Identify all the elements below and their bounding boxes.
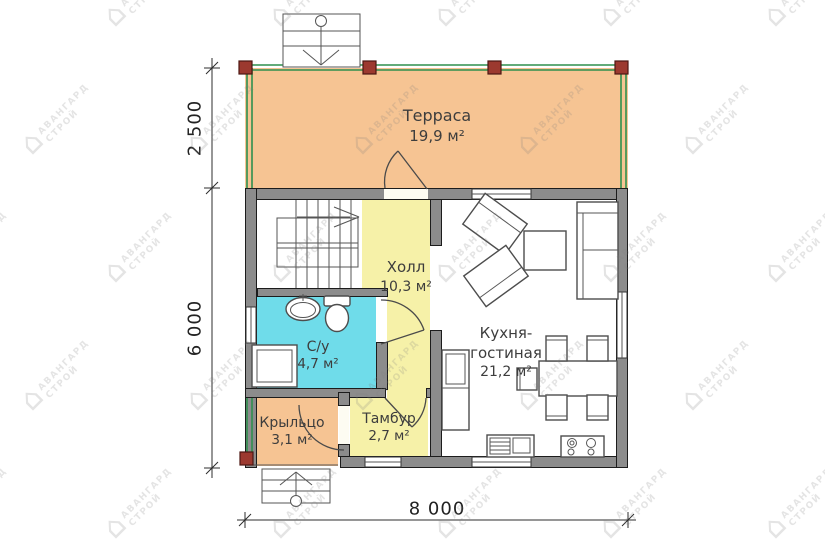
hall-name: Холл bbox=[380, 258, 432, 278]
watermark-logo: ⌂АВАНГАРДСТРОЙ bbox=[263, 460, 348, 545]
watermark-logo: ⌂АВАНГАРДСТРОЙ bbox=[675, 76, 760, 161]
watermark-logo: ⌂АВАНГАРДСТРОЙ bbox=[428, 0, 513, 32]
watermark-brand-text: АВАНГАРДСТРОЙ bbox=[37, 338, 99, 400]
watermark-brand-text: АВАНГАРДСТРОЙ bbox=[285, 0, 347, 17]
dining-chair bbox=[546, 336, 567, 361]
bathroom-area: 4,7 м² bbox=[297, 356, 338, 374]
entry-stairs-bottom bbox=[262, 469, 330, 507]
kitchen-area: 21,2 м² bbox=[470, 363, 542, 381]
watermark-logo: ⌂АВАНГАРДСТРОЙ bbox=[0, 0, 17, 32]
watermark-brand-text: АВАНГАРДСТРОЙ bbox=[780, 0, 825, 17]
kitchen-sink-unit bbox=[487, 435, 534, 457]
bathroom-name: С/у bbox=[297, 338, 338, 356]
watermark-brand-text: АВАНГАРДСТРОЙ bbox=[697, 338, 759, 400]
kitchen-name-line2: гостиная bbox=[470, 344, 542, 364]
watermark-logo: ⌂АВАНГАРДСТРОЙ bbox=[758, 204, 825, 289]
watermark-brand-text: АВАНГАРДСТРОЙ bbox=[120, 466, 182, 528]
porch-area: 3,1 м² bbox=[259, 432, 324, 450]
watermark-brand-text: АВАНГАРДСТРОЙ bbox=[780, 210, 825, 272]
hall-area: 10,3 м² bbox=[380, 278, 432, 296]
watermark-house-icon: ⌂ bbox=[98, 510, 133, 545]
watermark-logo: ⌂АВАНГАРДСТРОЙ bbox=[15, 76, 100, 161]
watermark-logo: ⌂АВАНГАРДСТРОЙ bbox=[263, 0, 348, 32]
watermark-house-icon: ⌂ bbox=[675, 382, 710, 417]
entry-stairs-top bbox=[283, 14, 360, 67]
watermark-house-icon: ⌂ bbox=[758, 0, 793, 32]
watermark-house-icon: ⌂ bbox=[98, 0, 133, 32]
wall-porch-vestibule-lower bbox=[338, 444, 350, 457]
wall-porch-top bbox=[245, 388, 386, 398]
armchair-1 bbox=[463, 193, 527, 254]
entrance-door-opening bbox=[339, 406, 349, 444]
kitchen-name-line1: Кухня- bbox=[470, 324, 542, 344]
wall-left bbox=[245, 188, 257, 468]
vestibule-area: 2,7 м² bbox=[362, 428, 416, 446]
watermark-house-icon: ⌂ bbox=[428, 254, 463, 289]
watermark-house-icon: ⌂ bbox=[428, 0, 463, 32]
watermark-logo: ⌂АВАНГАРДСТРОЙ bbox=[593, 204, 678, 289]
watermark-house-icon: ⌂ bbox=[15, 382, 50, 417]
hall-label: Холл 10,3 м² bbox=[380, 258, 432, 296]
watermark-house-icon: ⌂ bbox=[758, 510, 793, 545]
kitchen-label: Кухня- гостиная 21,2 м² bbox=[470, 324, 542, 381]
watermark-brand-text: АВАНГАРДСТРОЙ bbox=[285, 466, 347, 528]
watermark-house-icon: ⌂ bbox=[593, 510, 628, 545]
dimension-terrace-depth: 2 500 bbox=[185, 100, 206, 157]
armchair-2 bbox=[464, 245, 528, 306]
watermark-brand-text: АВАНГАРДСТРОЙ bbox=[450, 0, 512, 17]
room-stair-area bbox=[257, 199, 362, 289]
coffee-table bbox=[524, 231, 566, 270]
stove bbox=[561, 436, 604, 457]
watermark-brand-text: АВАНГАРДСТРОЙ bbox=[615, 0, 677, 17]
watermark-house-icon: ⌂ bbox=[15, 126, 50, 161]
watermark-brand-text: АВАНГАРДСТРОЙ bbox=[615, 466, 677, 528]
terrace-area: 19,9 м² bbox=[403, 127, 471, 147]
porch-name: Крыльцо bbox=[259, 414, 324, 432]
watermark-house-icon: ⌂ bbox=[180, 382, 215, 417]
kitchen-counter bbox=[442, 350, 469, 430]
watermark-logo: ⌂АВАНГАРДСТРОЙ bbox=[15, 332, 100, 417]
watermark-brand-text: АВАНГАРДСТРОЙ bbox=[0, 210, 17, 272]
watermark-logo: ⌂АВАНГАРДСТРОЙ bbox=[98, 0, 183, 32]
watermark-house-icon: ⌂ bbox=[593, 0, 628, 32]
wall-bottom bbox=[340, 456, 628, 468]
dimension-total-width: 8 000 bbox=[409, 499, 466, 520]
dining-table bbox=[539, 361, 617, 396]
watermark-house-icon: ⌂ bbox=[510, 382, 545, 417]
watermark-house-icon: ⌂ bbox=[263, 0, 298, 32]
watermark-logo: ⌂АВАНГАРДСТРОЙ bbox=[98, 460, 183, 545]
wall-porch-vestibule-upper bbox=[338, 392, 350, 406]
watermark-house-icon: ⌂ bbox=[675, 126, 710, 161]
floor-plan-canvas: Терраса 19,9 м² Холл 10,3 м² С/у 4,7 м² … bbox=[0, 0, 825, 550]
watermark-house-icon: ⌂ bbox=[758, 254, 793, 289]
wall-bathroom-top bbox=[257, 288, 388, 297]
watermark-brand-text: АВАНГАРДСТРОЙ bbox=[697, 82, 759, 144]
watermark-house-icon: ⌂ bbox=[98, 254, 133, 289]
bathroom-label: С/у 4,7 м² bbox=[297, 338, 338, 374]
watermark-logo: ⌂АВАНГАРДСТРОЙ bbox=[758, 0, 825, 32]
terrace-name: Терраса bbox=[403, 106, 471, 127]
watermark-brand-text: АВАНГАРДСТРОЙ bbox=[450, 210, 512, 272]
watermark-logo: ⌂АВАНГАРДСТРОЙ bbox=[98, 204, 183, 289]
watermark-logo: ⌂АВАНГАРДСТРОЙ bbox=[758, 460, 825, 545]
watermark-logo: ⌂АВАНГАРДСТРОЙ bbox=[593, 460, 678, 545]
watermark-brand-text: АВАНГАРДСТРОЙ bbox=[120, 0, 182, 17]
terrace-label: Терраса 19,9 м² bbox=[403, 106, 471, 146]
watermark-brand-text: АВАНГАРДСТРОЙ bbox=[0, 466, 17, 528]
watermark-logo: ⌂АВАНГАРДСТРОЙ bbox=[0, 204, 17, 289]
watermark-brand-text: АВАНГАРДСТРОЙ bbox=[120, 210, 182, 272]
wall-kitchen-hall-lower bbox=[430, 330, 442, 457]
watermark-logo: ⌂АВАНГАРДСТРОЙ bbox=[675, 332, 760, 417]
vestibule-label: Тамбур 2,7 м² bbox=[362, 410, 416, 446]
watermark-logo: ⌂АВАНГАРДСТРОЙ bbox=[0, 460, 17, 545]
watermark-brand-text: АВАНГАРДСТРОЙ bbox=[780, 466, 825, 528]
porch-label: Крыльцо 3,1 м² bbox=[259, 414, 324, 450]
sofa bbox=[577, 202, 618, 299]
dining-chair bbox=[546, 395, 567, 420]
watermark-logo: ⌂АВАНГАРДСТРОЙ bbox=[593, 0, 678, 32]
dining-chair bbox=[587, 395, 608, 420]
vestibule-name: Тамбур bbox=[362, 410, 416, 428]
watermark-house-icon: ⌂ bbox=[263, 510, 298, 545]
dimension-house-depth: 6 000 bbox=[185, 300, 206, 357]
wall-right bbox=[616, 188, 628, 468]
wall-kitchen-hall-upper bbox=[430, 199, 442, 246]
dining-chair bbox=[587, 336, 608, 361]
room-hall-lower bbox=[387, 289, 430, 398]
watermark-brand-text: АВАНГАРДСТРОЙ bbox=[0, 0, 17, 17]
watermark-brand-text: АВАНГАРДСТРОЙ bbox=[37, 82, 99, 144]
wall-bathroom-right bbox=[376, 342, 388, 390]
